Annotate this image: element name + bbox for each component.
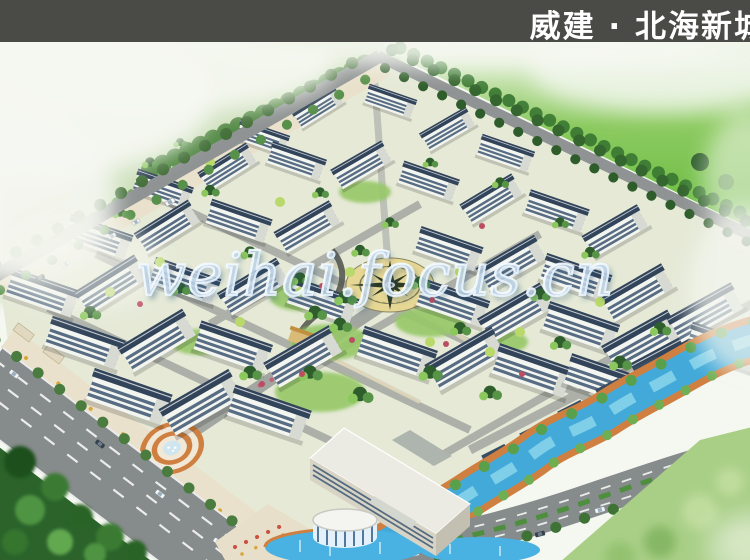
screenshot-root: 威建 · 北海新城 <box>0 0 750 560</box>
project-title: 威建 · 北海新城 <box>530 1 750 42</box>
site-plan-svg <box>0 42 750 560</box>
cylinder-hall <box>313 509 377 548</box>
aerial-rendering: weihai.focus.cn <box>0 42 750 560</box>
title-bar: 威建 · 北海新城 <box>0 0 750 42</box>
